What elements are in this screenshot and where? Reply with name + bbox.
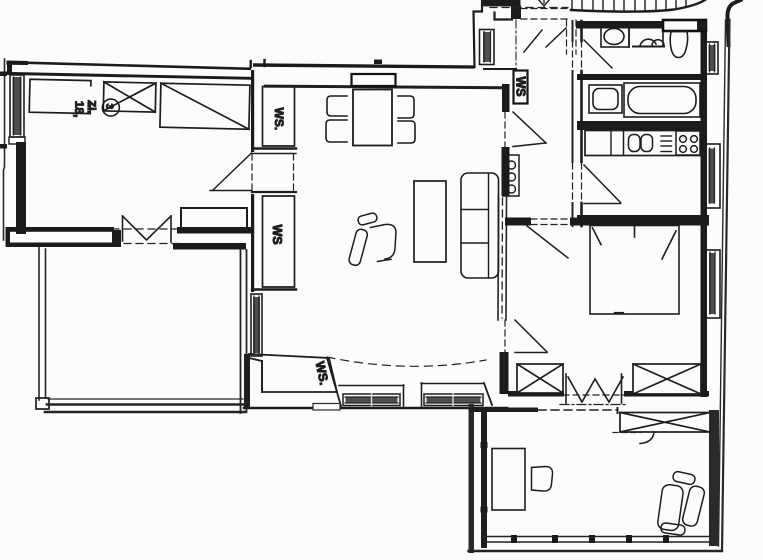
svg-text:WS: WS xyxy=(514,77,528,97)
svg-text:18,: 18, xyxy=(72,101,86,118)
svg-text:WS.: WS. xyxy=(272,108,286,131)
svg-text:WS: WS xyxy=(270,225,284,245)
